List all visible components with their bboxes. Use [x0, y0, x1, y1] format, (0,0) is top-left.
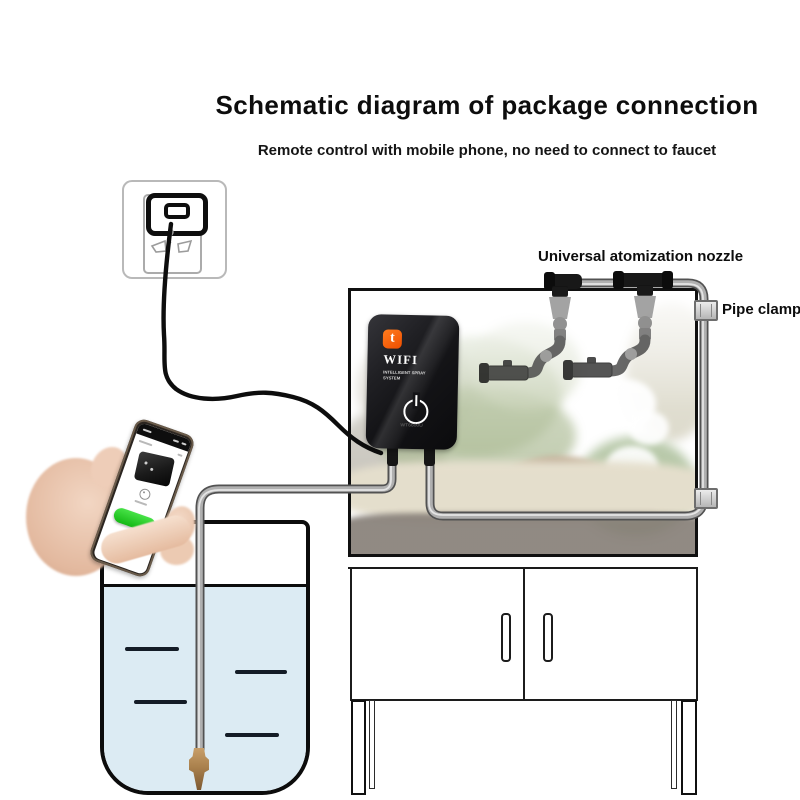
- pipe-clamp-label: Pipe clamp: [722, 301, 800, 318]
- tuya-logo-icon: t: [383, 329, 402, 348]
- water-mark: [134, 700, 187, 704]
- cabinet-leg: [671, 700, 677, 789]
- device-name: WIFI: [383, 352, 418, 368]
- cabinet-stand: [350, 567, 698, 701]
- device-model: WT6600U: [383, 421, 440, 428]
- pipe-clamp: [694, 300, 718, 321]
- wall-outlet: [122, 180, 227, 279]
- app-close-icon: [177, 453, 182, 457]
- cabinet-handle-right: [543, 613, 553, 662]
- gear-icon: [138, 487, 152, 501]
- app-device-image: [133, 450, 174, 486]
- power-plug: [146, 193, 208, 236]
- cabinet-leg: [369, 700, 375, 789]
- page-subtitle: Remote control with mobile phone, no nee…: [180, 142, 794, 159]
- phone-statusbar: [136, 421, 192, 451]
- water-mark: [125, 647, 179, 651]
- spray-device: t WIFI INTELLIGENT SPRAY SYSTEM WT6600U: [366, 314, 460, 450]
- power-icon: [403, 399, 429, 425]
- water-mark: [225, 733, 279, 737]
- cabinet-leg: [681, 700, 697, 795]
- app-title-text: [138, 439, 152, 446]
- cabinet-top: [348, 557, 698, 569]
- nozzle-label: Universal atomization nozzle: [538, 248, 743, 265]
- plug-socket-hole: [164, 203, 190, 219]
- cabinet-handle-left: [501, 613, 511, 662]
- page-title: Schematic diagram of package connection: [180, 90, 794, 121]
- water-mark: [235, 670, 287, 674]
- app-caption-text: [134, 499, 147, 505]
- schematic-diagram: Schematic diagram of package connection …: [0, 0, 800, 800]
- pipe-clamp: [694, 488, 718, 509]
- cabinet-leg: [351, 700, 366, 795]
- cabinet-door-divider: [523, 569, 525, 699]
- device-tagline: INTELLIGENT SPRAY SYSTEM: [383, 369, 466, 382]
